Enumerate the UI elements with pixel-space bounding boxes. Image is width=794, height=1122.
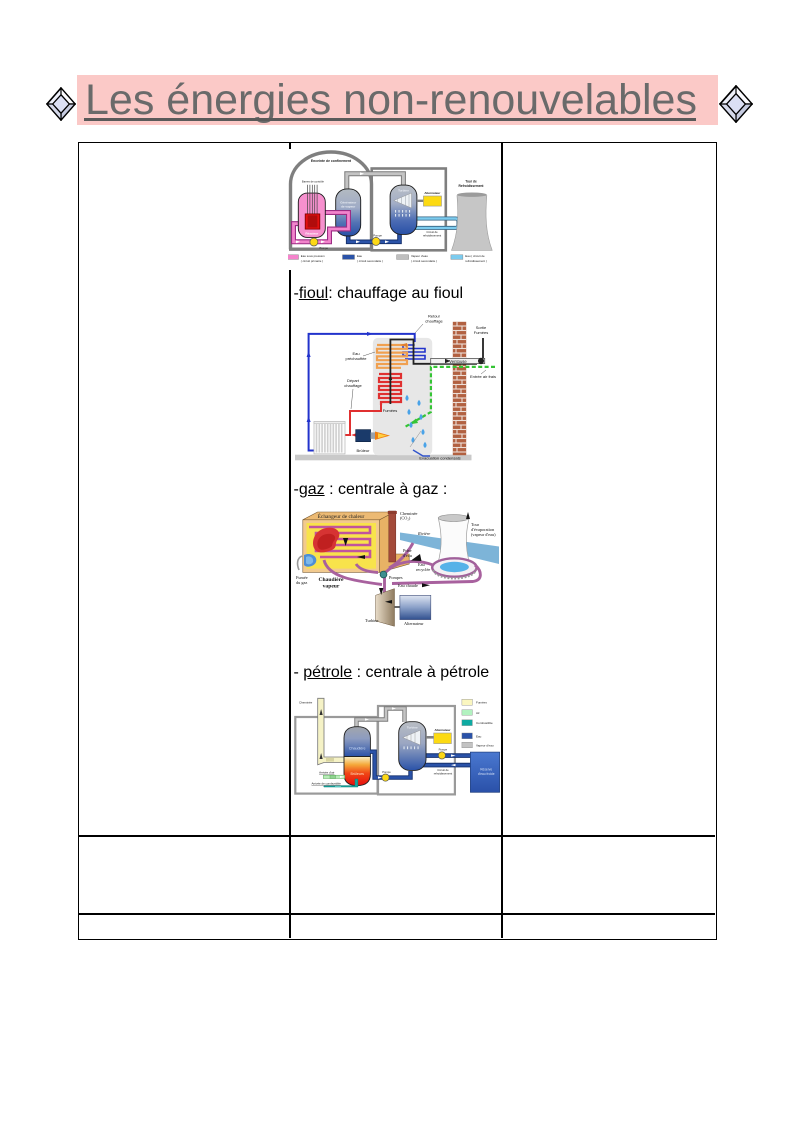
svg-text:Evacuation condensats: Evacuation condensats — [419, 456, 460, 461]
svg-text:Circuit de: Circuit de — [437, 768, 449, 772]
svg-text:Alternateur: Alternateur — [404, 621, 424, 626]
svg-text:préchauffée: préchauffée — [345, 356, 367, 361]
svg-text:chauffage: chauffage — [344, 383, 362, 388]
svg-text:Brûleurs: Brûleurs — [351, 772, 365, 776]
svg-text:Brûleur: Brûleur — [357, 448, 371, 453]
svg-text:d'eau: d'eau — [403, 553, 413, 558]
svg-text:chauffage: chauffage — [425, 319, 443, 324]
svg-text:Vapeur d'eau: Vapeur d'eau — [411, 254, 428, 258]
svg-text:Ventouse: Ventouse — [449, 359, 467, 364]
svg-text:Chaudière: Chaudière — [349, 747, 366, 751]
svg-text:Combustible: Combustible — [476, 721, 493, 725]
svg-text:de vapeur: de vapeur — [341, 205, 356, 209]
svg-text:Arrivée d'air: Arrivée d'air — [319, 771, 334, 775]
svg-text:Tour de: Tour de — [465, 180, 477, 184]
svg-text:vapeur: vapeur — [323, 584, 340, 590]
svg-text:Alternateur: Alternateur — [424, 191, 441, 195]
svg-text:( circuit secondaire ): ( circuit secondaire ) — [411, 259, 437, 263]
svg-text:Barres de contrôle: Barres de contrôle — [302, 180, 324, 184]
svg-text:refroidissement ): refroidissement ) — [465, 259, 487, 263]
svg-text:Vapeur d'eau: Vapeur d'eau — [476, 744, 494, 748]
svg-text:Pompe: Pompe — [320, 246, 329, 250]
svg-text:Pompe: Pompe — [373, 234, 382, 238]
svg-text:Cheminée: Cheminée — [299, 701, 313, 705]
svg-text:Chaudière: Chaudière — [318, 577, 344, 583]
svg-text:Pompes: Pompes — [389, 575, 403, 580]
svg-text:Circuit de: Circuit de — [426, 230, 438, 234]
svg-text:Arrivée de combustible: Arrivée de combustible — [312, 782, 342, 786]
svg-text:( circuit primaire ): ( circuit primaire ) — [301, 259, 323, 263]
svg-text:Eau ( circuit de: Eau ( circuit de — [465, 254, 485, 258]
svg-text:d'eau froide: d'eau froide — [478, 772, 495, 776]
svg-text:Turbine: Turbine — [407, 726, 418, 730]
svg-text:du gaz: du gaz — [296, 580, 307, 585]
svg-text:Alternateur: Alternateur — [434, 728, 451, 732]
svg-text:Eau: Eau — [357, 254, 363, 258]
svg-text:Fumées: Fumées — [476, 701, 487, 705]
svg-text:refroidissement: refroidissement — [423, 234, 442, 238]
svg-text:(vapeur d'eau): (vapeur d'eau) — [471, 532, 496, 537]
svg-text:Eau sous pression: Eau sous pression — [301, 254, 325, 258]
svg-text:Fumées: Fumées — [383, 408, 397, 413]
svg-text:(CO₂): (CO₂) — [400, 516, 411, 521]
svg-text:Enceinte de confinement: Enceinte de confinement — [311, 159, 352, 163]
svg-text:Rivière: Rivière — [417, 531, 430, 536]
svg-text:Échangeur de chaleur: Échangeur de chaleur — [318, 512, 365, 520]
svg-text:Entrée air frais: Entrée air frais — [470, 374, 496, 379]
svg-text:Turbine: Turbine — [398, 189, 409, 193]
svg-text:refroidissement: refroidissement — [434, 771, 453, 775]
svg-text:Air: Air — [476, 711, 480, 715]
svg-text:recyclée: recyclée — [416, 567, 430, 572]
svg-text:Eau: Eau — [476, 734, 482, 738]
svg-text:Eau chaude: Eau chaude — [398, 583, 418, 588]
svg-text:Réserve: Réserve — [480, 768, 492, 772]
svg-text:Pompe: Pompe — [439, 748, 448, 752]
svg-text:Pompe: Pompe — [382, 770, 391, 774]
svg-text:Turbine: Turbine — [365, 618, 379, 623]
svg-text:Fumées: Fumées — [474, 330, 488, 335]
svg-text:( circuit secondaire ): ( circuit secondaire ) — [357, 259, 383, 263]
svg-text:Refroidissement: Refroidissement — [459, 184, 485, 188]
svg-text:Réacteur: Réacteur — [305, 232, 319, 236]
